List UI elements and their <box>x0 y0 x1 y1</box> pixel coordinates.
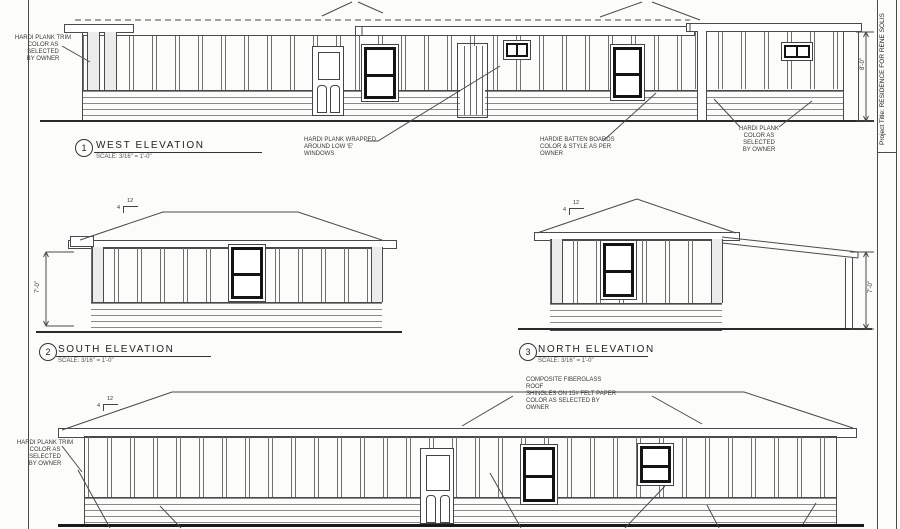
bottom-left-edge <box>84 436 85 524</box>
bottom-entry-door <box>420 448 454 524</box>
bottom-lap-siding <box>84 497 836 526</box>
annotation-hardi-trim-bottom: HARDI PLANK TRIM COLOR AS SELECTED BY OW… <box>16 440 74 468</box>
bottom-right-edge <box>836 436 837 524</box>
bottom-wall-battens <box>84 436 836 498</box>
elevation-sheet: Project Title: RESIDENCE FOR RENE SOLIS <box>0 0 900 529</box>
bottom-window-small <box>637 443 674 486</box>
door-panel-left <box>426 495 436 523</box>
bottom-window-large <box>520 444 558 505</box>
annotation-roof-shingles: COMPOSITE FIBERGLASS ROOF SHINGLES ON 15… <box>526 377 618 412</box>
bottom-roof-pitch-marker: 12 4 <box>100 396 122 412</box>
bottom-ground-line <box>58 524 864 527</box>
door-panel-right <box>440 495 450 523</box>
bottom-elevation: 12 4 HARDI PLANK TRIM COLOR AS SELECTED … <box>0 0 900 529</box>
door-glass-pane <box>426 455 450 491</box>
